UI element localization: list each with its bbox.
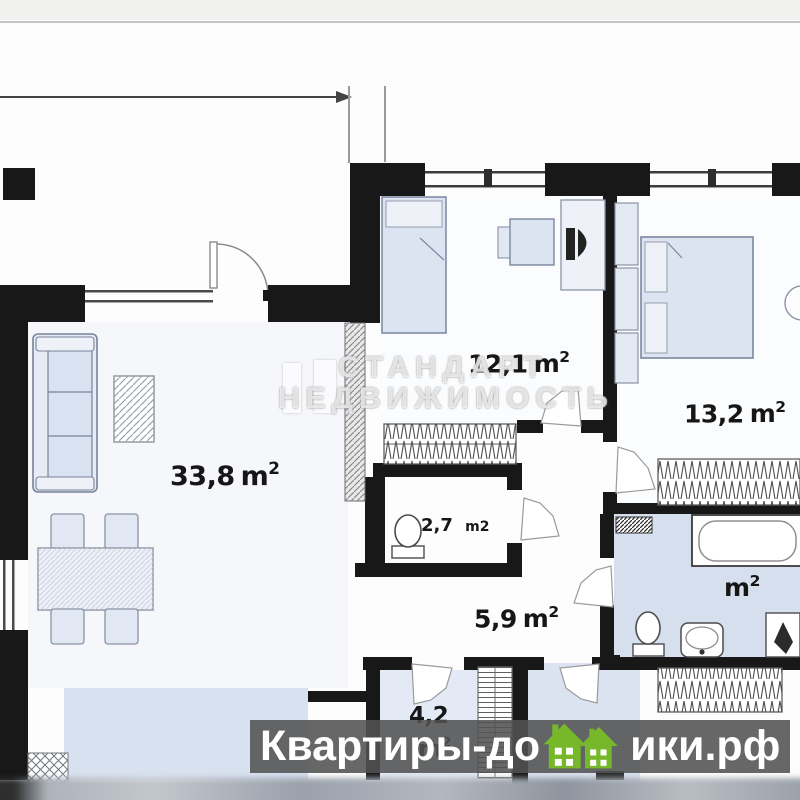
door-wc: [521, 498, 559, 540]
wardrobe-bedroom1: [384, 424, 516, 464]
area-value: 2,7: [421, 515, 453, 536]
area-value: 33,8: [170, 461, 235, 492]
door-bathroom: [574, 566, 613, 607]
tv-stand: [114, 376, 154, 442]
washing-machine: [766, 613, 800, 657]
wardrobe-bottom: [658, 668, 782, 712]
room-label-bathroom: m2: [724, 573, 760, 602]
agency-watermark-line2: НЕДВИЖИМОСТЬ: [278, 383, 614, 414]
area-unit: m2: [465, 519, 489, 535]
bathtub: [692, 515, 800, 566]
area-sup: 2: [268, 458, 279, 478]
area-unit: m: [724, 573, 750, 602]
top-crop-band: [0, 0, 800, 20]
sofa: [33, 334, 97, 492]
area-unit: m: [241, 461, 269, 492]
room-label-wc: 2,7 m2: [421, 515, 490, 536]
area-sup: 2: [775, 398, 785, 416]
bedside-units: [615, 203, 638, 383]
site-watermark-text-right: ики.рф: [630, 725, 780, 768]
wc-toilet: [392, 515, 424, 558]
bed-double: [641, 237, 753, 358]
bottom-blur-band: [0, 778, 800, 800]
agency-watermark-line1: СТАНДАРТ: [338, 352, 614, 383]
area-unit: m: [750, 399, 776, 428]
top-crop-line: [0, 21, 800, 23]
bathroom-shelf: [616, 517, 652, 533]
area-sup: 2: [548, 603, 558, 621]
area-value: 5,9: [474, 604, 517, 633]
dimension-line: [0, 86, 386, 163]
wardrobe-bedroom2: [658, 459, 800, 505]
area-unit: m: [523, 604, 549, 633]
sink: [681, 623, 723, 657]
floorplan-image: 33,8m2 12,1m2 13,2m2 2,7 m2 5,9m2 4,2 m2…: [0, 0, 800, 800]
bed-single: [382, 197, 446, 333]
room-label-living: 33,8m2: [170, 459, 279, 492]
area-value: 13,2: [684, 399, 744, 428]
room-label-hallway: 5,9m2: [474, 604, 559, 633]
agency-watermark: СТАНДАРТ НЕДВИЖИМОСТЬ: [278, 352, 614, 414]
houses-icon: [537, 721, 633, 771]
balcony-door: [210, 242, 272, 301]
area-sup: 2: [750, 572, 760, 590]
site-watermark-text-left: Квартиры-до: [260, 725, 540, 768]
room-label-bedroom2: 13,2m2: [684, 399, 786, 428]
site-watermark-banner: Квартиры-до ики.рф: [250, 720, 790, 773]
computer-desk: [561, 200, 605, 290]
